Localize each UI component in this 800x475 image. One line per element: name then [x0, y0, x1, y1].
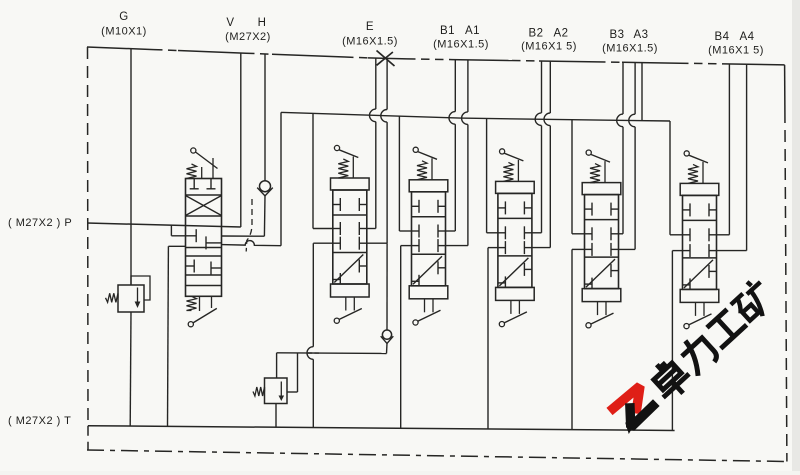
svg-text:A4: A4 [739, 31, 754, 43]
svg-text:( M27X2 ) P: ( M27X2 ) P [8, 217, 72, 229]
svg-text:B2: B2 [528, 28, 543, 40]
svg-text:(M16X1 5): (M16X1 5) [708, 45, 764, 57]
svg-text:A3: A3 [633, 29, 648, 41]
svg-text:B1: B1 [440, 25, 455, 37]
svg-text:B4: B4 [714, 31, 729, 43]
svg-text:A1: A1 [465, 25, 480, 37]
svg-text:( M27X2 ) T: ( M27X2 ) T [8, 415, 71, 427]
svg-text:B3: B3 [609, 29, 624, 41]
svg-text:(M16X1.5): (M16X1.5) [433, 39, 489, 51]
svg-text:H: H [258, 17, 267, 29]
svg-text:(M16X1 5): (M16X1 5) [521, 41, 577, 53]
svg-text:A2: A2 [553, 28, 568, 40]
svg-text:(M10X1): (M10X1) [101, 26, 147, 38]
svg-text:(M27X2): (M27X2) [225, 31, 271, 43]
svg-text:V: V [226, 17, 234, 29]
svg-text:G: G [119, 11, 128, 23]
svg-text:E: E [366, 21, 374, 33]
svg-text:(M16X1.5): (M16X1.5) [342, 36, 398, 48]
svg-text:(M16X1.5): (M16X1.5) [602, 43, 658, 55]
